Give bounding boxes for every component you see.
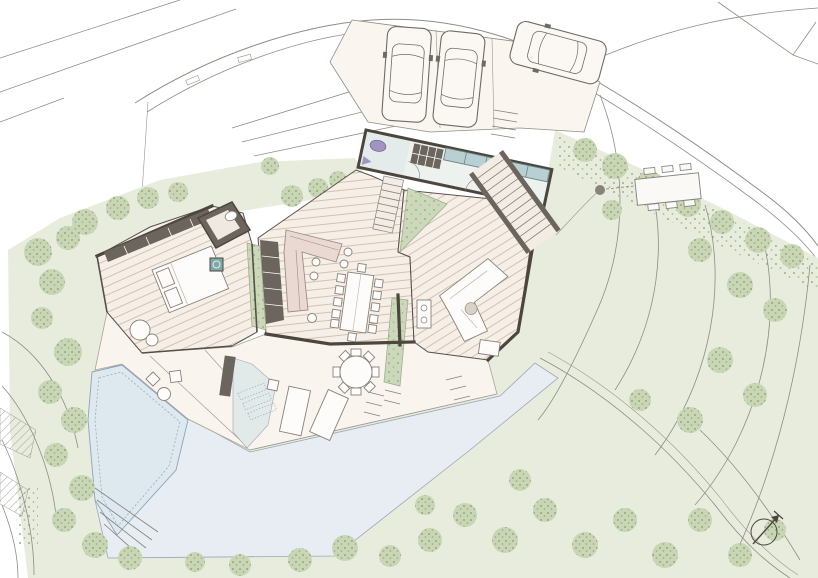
- ottoman: [478, 340, 500, 357]
- car-1: [378, 26, 434, 123]
- side-table: [267, 379, 279, 391]
- parking-area: [330, 17, 609, 138]
- stove: [210, 258, 223, 271]
- stool: [344, 248, 352, 256]
- site-plan-canvas: [0, 0, 818, 578]
- tree-trunk-marker: [595, 185, 605, 195]
- stool: [340, 260, 348, 268]
- stool: [308, 314, 317, 323]
- stool: [312, 258, 320, 266]
- round-table-set: [333, 349, 379, 395]
- poolside-cushion: [169, 370, 181, 382]
- stool: [310, 272, 318, 280]
- poolside-stool: [158, 388, 171, 401]
- side-bench: [417, 300, 431, 328]
